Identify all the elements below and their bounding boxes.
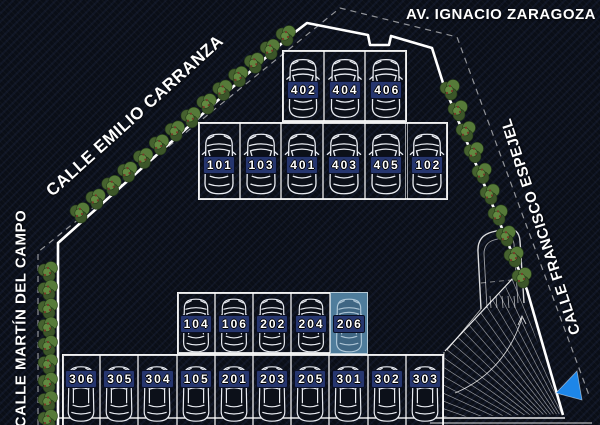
stall-number: 204 xyxy=(295,315,327,333)
car-top-view-icon xyxy=(103,359,135,425)
parking-space-302[interactable]: 302 xyxy=(368,354,406,425)
stall-number: 205 xyxy=(294,370,326,388)
parking-space-401[interactable]: 401 xyxy=(281,122,323,200)
tree-icon xyxy=(38,391,58,412)
stair-tick xyxy=(490,296,491,308)
stair-tick xyxy=(514,296,515,308)
parking-space-404[interactable]: 404 xyxy=(324,50,366,122)
tree-icon xyxy=(38,336,58,357)
street-label-calle-martin-del-campo: CALLE MARTÍN DEL CAMPO xyxy=(13,208,30,425)
parking-space-406[interactable]: 406 xyxy=(365,50,407,122)
tree-icon xyxy=(464,142,484,163)
parking-space-205[interactable]: 205 xyxy=(291,354,329,425)
parking-space-206[interactable]: 206 xyxy=(330,292,368,354)
tree-icon xyxy=(70,203,90,224)
tree-icon xyxy=(472,163,492,184)
tree-icon xyxy=(38,280,58,301)
car-top-view-icon xyxy=(256,359,288,425)
car-top-view-icon xyxy=(371,359,403,425)
stair-tick xyxy=(502,296,503,308)
stall-number: 303 xyxy=(409,370,441,388)
stall-number: 403 xyxy=(328,156,360,174)
parking-space-405[interactable]: 405 xyxy=(365,122,407,200)
stall-number: 402 xyxy=(287,81,319,99)
stall-number: 404 xyxy=(329,81,361,99)
parking-space-204[interactable]: 204 xyxy=(291,292,329,354)
stall-number: 105 xyxy=(180,370,212,388)
tree-icon xyxy=(38,262,58,283)
parking-space-402[interactable]: 402 xyxy=(282,50,324,122)
tree-icon xyxy=(38,410,58,425)
parking-space-304[interactable]: 304 xyxy=(138,354,176,425)
parking-space-305[interactable]: 305 xyxy=(100,354,138,425)
stair-tick xyxy=(508,296,509,308)
stall-number: 202 xyxy=(256,315,288,333)
car-top-view-icon xyxy=(294,359,326,425)
tree-icon xyxy=(38,299,58,320)
stall-number: 201 xyxy=(218,370,250,388)
tree-icon xyxy=(456,121,476,141)
tree-icon xyxy=(512,268,532,289)
parking-space-102[interactable]: 102 xyxy=(407,122,449,200)
stall-number: 106 xyxy=(218,315,250,333)
car-top-view-icon xyxy=(218,359,250,425)
parking-space-106[interactable]: 106 xyxy=(215,292,253,354)
stall-number: 103 xyxy=(245,156,277,174)
car-top-view-icon xyxy=(332,359,364,425)
car-top-view-icon xyxy=(409,359,441,425)
parking-space-105[interactable]: 105 xyxy=(177,354,215,425)
tree-icon xyxy=(38,354,58,375)
stall-number: 101 xyxy=(203,156,235,174)
tree-icon xyxy=(504,247,524,268)
parking-map: AV. IGNACIO ZARAGOZA CALLE EMILIO CARRAN… xyxy=(0,0,600,425)
stall-number: 206 xyxy=(333,315,365,333)
stall-number: 104 xyxy=(180,315,212,333)
stall-number: 406 xyxy=(370,81,402,99)
parking-space-203[interactable]: 203 xyxy=(253,354,291,425)
tree-icon xyxy=(440,80,460,101)
tree-icon xyxy=(448,100,468,121)
stall-number: 405 xyxy=(370,156,402,174)
tree-icon xyxy=(38,317,58,338)
parking-space-403[interactable]: 403 xyxy=(323,122,365,200)
parking-space-301[interactable]: 301 xyxy=(329,354,367,425)
parking-space-101[interactable]: 101 xyxy=(198,122,240,200)
ramp-centerline-arrow xyxy=(518,316,526,325)
stall-number: 302 xyxy=(371,370,403,388)
parking-space-303[interactable]: 303 xyxy=(406,354,444,425)
tree-icon xyxy=(496,226,516,247)
stall-number: 306 xyxy=(65,370,97,388)
entrance-arrow-icon xyxy=(556,371,582,400)
street-label-av-ignacio-zaragoza: AV. IGNACIO ZARAGOZA xyxy=(406,6,592,23)
car-top-view-icon xyxy=(180,359,212,425)
parking-space-306[interactable]: 306 xyxy=(62,354,100,425)
stall-number: 102 xyxy=(411,156,443,174)
stall-number: 301 xyxy=(332,370,364,388)
parking-space-104[interactable]: 104 xyxy=(177,292,215,354)
tree-icon xyxy=(38,373,58,394)
parking-space-201[interactable]: 201 xyxy=(215,354,253,425)
stall-number: 304 xyxy=(141,370,173,388)
parking-space-202[interactable]: 202 xyxy=(253,292,291,354)
stall-number: 401 xyxy=(286,156,318,174)
stall-number: 203 xyxy=(256,370,288,388)
car-top-view-icon xyxy=(141,359,173,425)
tree-icon xyxy=(488,205,508,226)
tree-icon xyxy=(480,184,500,205)
stall-number: 305 xyxy=(103,370,135,388)
car-top-view-icon xyxy=(65,359,97,425)
parking-space-103[interactable]: 103 xyxy=(240,122,282,200)
